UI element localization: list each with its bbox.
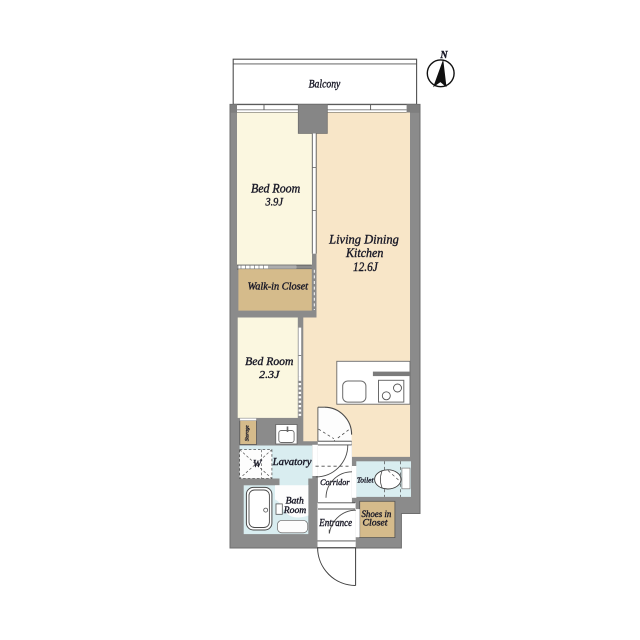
svg-text:Closet: Closet (363, 517, 388, 527)
svg-text:Bed Room: Bed Room (245, 356, 293, 368)
svg-text:Balcony: Balcony (309, 77, 341, 91)
svg-text:2.3J: 2.3J (259, 369, 280, 381)
svg-text:12.6J: 12.6J (353, 260, 379, 274)
svg-text:Lavatory: Lavatory (272, 457, 312, 468)
svg-text:Living Dining: Living Dining (328, 232, 399, 247)
svg-text:Bed Room: Bed Room (251, 182, 300, 196)
svg-text:Storage: Storage (245, 425, 251, 441)
svg-text:Toilet: Toilet (357, 475, 375, 484)
svg-text:Corridor: Corridor (320, 478, 350, 487)
svg-text:Walk-in Closet: Walk-in Closet (248, 282, 309, 293)
svg-text:N: N (439, 50, 448, 61)
svg-text:3.9J: 3.9J (265, 197, 284, 209)
svg-text:Kitchen: Kitchen (345, 246, 383, 260)
svg-text:Room: Room (283, 506, 307, 516)
